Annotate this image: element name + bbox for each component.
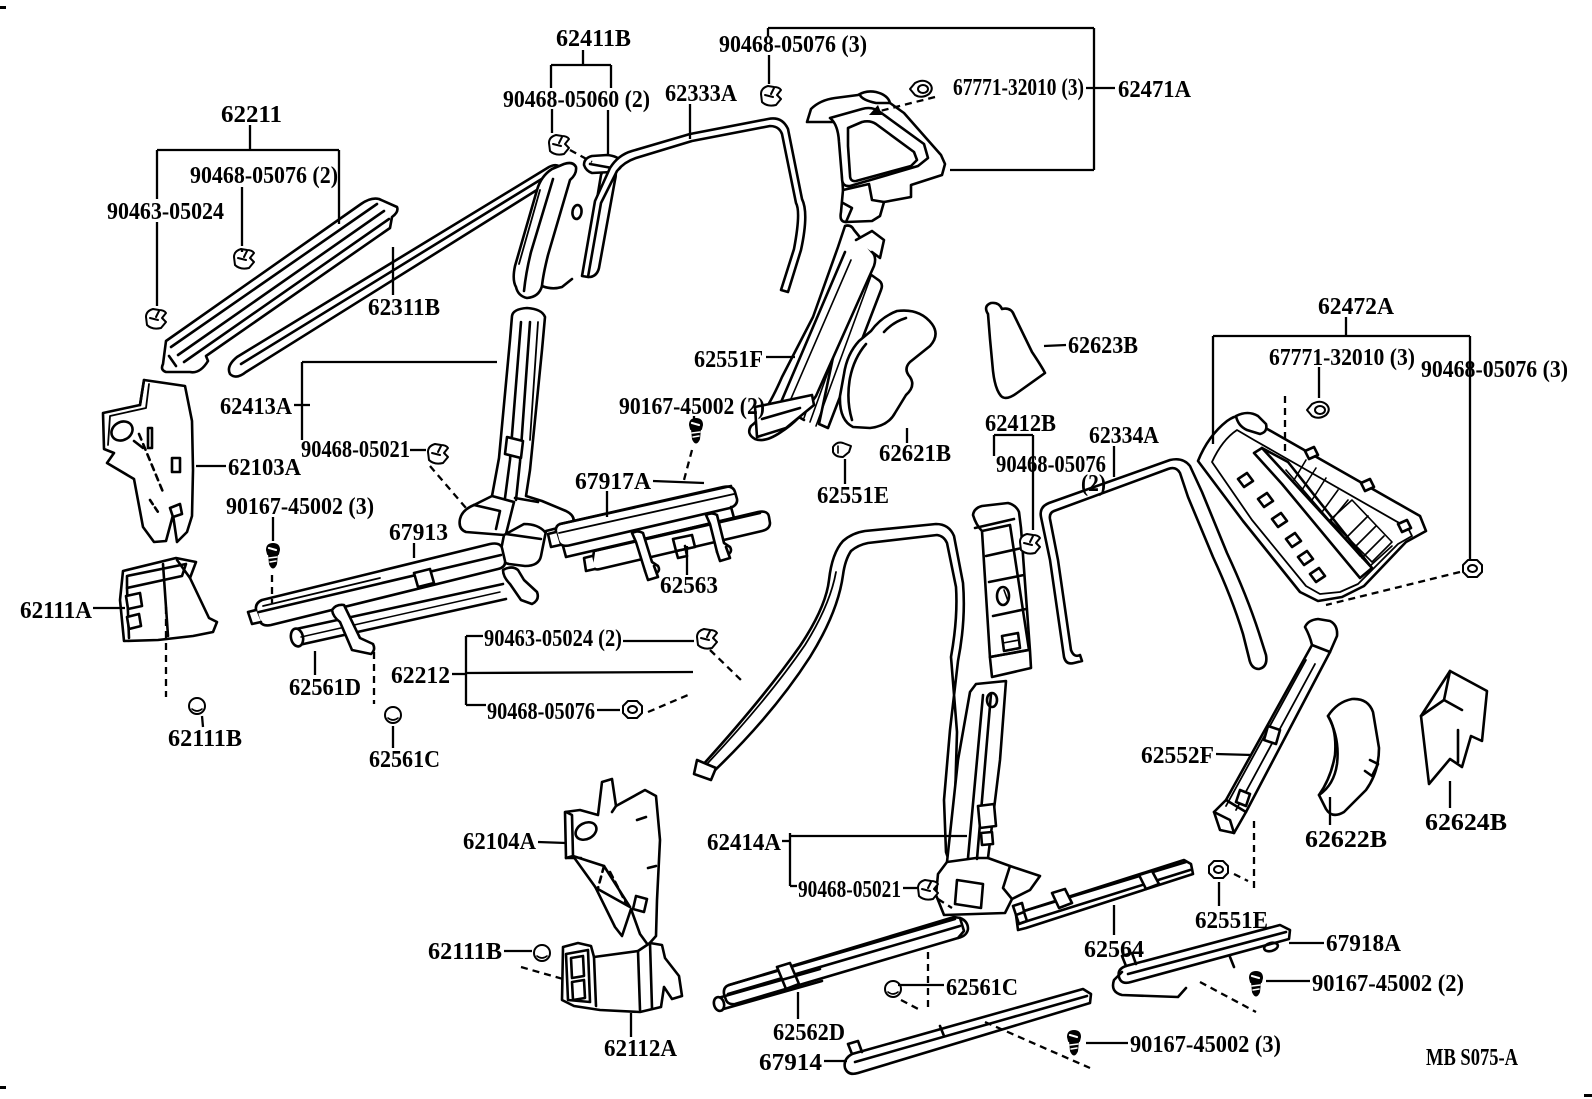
svg-text:62551F: 62551F — [694, 347, 763, 373]
svg-text:67771-32010 (3): 67771-32010 (3) — [953, 75, 1084, 101]
svg-text:90468-05060 (2): 90468-05060 (2) — [503, 87, 650, 113]
svg-text:90167-45002 (2): 90167-45002 (2) — [1312, 971, 1464, 997]
svg-text:62412B: 62412B — [985, 411, 1056, 437]
svg-text:62333A: 62333A — [665, 81, 738, 107]
svg-text:62111B: 62111B — [168, 726, 242, 752]
svg-text:67913: 67913 — [389, 520, 448, 546]
svg-text:62561C: 62561C — [946, 975, 1018, 1001]
svg-text:62562D: 62562D — [773, 1020, 845, 1046]
svg-text:67771-32010 (3): 67771-32010 (3) — [1269, 345, 1415, 371]
svg-text:62622B: 62622B — [1305, 827, 1387, 853]
svg-text:62411B: 62411B — [556, 26, 631, 52]
svg-text:62561D: 62561D — [289, 675, 361, 701]
svg-text:62112A: 62112A — [604, 1036, 678, 1062]
svg-text:62471A: 62471A — [1118, 77, 1192, 103]
svg-text:62621B: 62621B — [879, 441, 951, 467]
svg-text:62212: 62212 — [391, 663, 450, 689]
svg-text:62624B: 62624B — [1425, 810, 1507, 836]
svg-text:62551E: 62551E — [817, 483, 889, 509]
svg-text:90167-45002 (3): 90167-45002 (3) — [226, 494, 374, 520]
svg-text:62564: 62564 — [1084, 937, 1144, 963]
svg-text:90463-05024 (2): 90463-05024 (2) — [484, 626, 622, 652]
svg-text:62472A: 62472A — [1318, 294, 1395, 320]
svg-text:62623B: 62623B — [1068, 333, 1138, 359]
svg-text:62552F: 62552F — [1141, 743, 1214, 769]
svg-text:90468-05021: 90468-05021 — [798, 877, 901, 903]
svg-text:90167-45002 (3): 90167-45002 (3) — [1130, 1032, 1281, 1058]
svg-text:67917A: 67917A — [575, 469, 652, 495]
svg-text:62311B: 62311B — [368, 295, 440, 321]
svg-text:90468-05076: 90468-05076 — [487, 699, 595, 725]
svg-text:90463-05024: 90463-05024 — [107, 199, 224, 225]
svg-text:67918A: 67918A — [1326, 931, 1402, 957]
svg-text:62104A: 62104A — [463, 829, 537, 855]
svg-text:90167-45002 (2): 90167-45002 (2) — [619, 394, 765, 420]
svg-text:62413A: 62413A — [220, 394, 293, 420]
svg-text:62111A: 62111A — [20, 598, 93, 624]
svg-text:67914: 67914 — [759, 1050, 822, 1076]
svg-text:90468-05021: 90468-05021 — [301, 437, 410, 463]
svg-text:62551E: 62551E — [1195, 908, 1268, 934]
svg-text:62211: 62211 — [221, 102, 282, 128]
svg-text:62334A: 62334A — [1089, 423, 1160, 449]
svg-text:62414A: 62414A — [707, 830, 782, 856]
svg-text:90468-05076 (3): 90468-05076 (3) — [719, 32, 867, 58]
svg-text:62563: 62563 — [660, 573, 718, 599]
svg-text:MB S075-A: MB S075-A — [1426, 1045, 1519, 1071]
svg-text:62561C: 62561C — [369, 747, 440, 773]
svg-text:90468-05076 (3): 90468-05076 (3) — [1421, 357, 1568, 383]
svg-text:(2): (2) — [1081, 471, 1106, 497]
svg-text:62103A: 62103A — [228, 455, 302, 481]
svg-text:90468-05076 (2): 90468-05076 (2) — [190, 163, 338, 189]
svg-text:62111B: 62111B — [428, 939, 502, 965]
